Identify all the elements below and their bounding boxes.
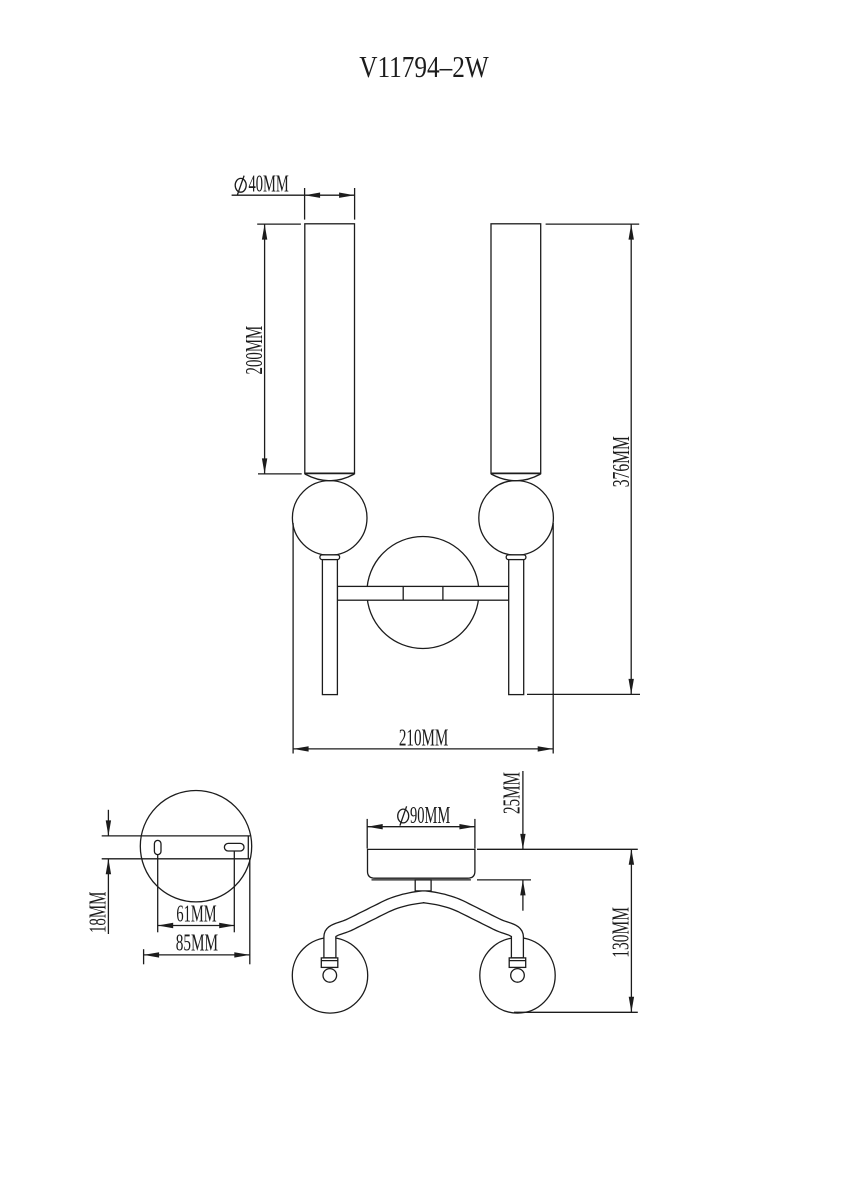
- svg-text:V11794–2W: V11794–2W: [359, 49, 489, 84]
- svg-text:85MM: 85MM: [176, 929, 219, 956]
- svg-text:130MM: 130MM: [608, 907, 635, 958]
- svg-text:200MM: 200MM: [241, 326, 268, 375]
- svg-text:210MM: 210MM: [399, 725, 449, 752]
- svg-text:18MM: 18MM: [84, 891, 111, 933]
- svg-text:25MM: 25MM: [498, 772, 525, 814]
- svg-text:40MM: 40MM: [248, 171, 288, 198]
- svg-text:61MM: 61MM: [176, 901, 216, 928]
- svg-text:90MM: 90MM: [410, 802, 450, 829]
